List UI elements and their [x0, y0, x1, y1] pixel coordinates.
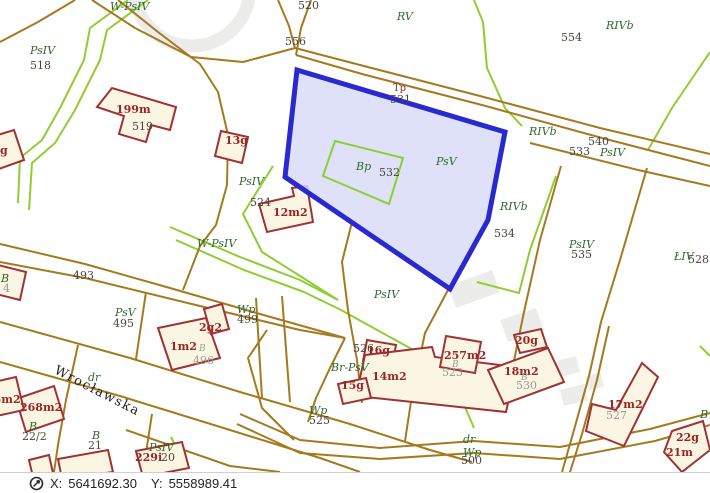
status-bar: X: 5641692.30 Y: 5558989.41: [0, 472, 710, 493]
parcel-number: 528: [688, 254, 709, 265]
building-label: 14m2: [372, 371, 407, 382]
parcel-number: 535: [571, 249, 592, 260]
map-canvas[interactable]: W-PsIVPsIV518RV520556RIVb554Tp531199m519…: [0, 0, 710, 472]
parcel-number: 524: [250, 197, 271, 208]
position-compass-icon: [29, 476, 44, 491]
parcel-number: 519: [132, 121, 153, 132]
faded-label: B: [199, 345, 206, 354]
landuse-label: Bp: [356, 161, 371, 172]
landuse-label: RIVb: [529, 126, 557, 137]
building-label: 12m2: [273, 207, 308, 218]
coordinate-x-label: X:: [50, 476, 62, 491]
building-label: 199m: [116, 104, 151, 115]
parcel-number: 534: [494, 228, 515, 239]
landuse-label: PsIV: [239, 176, 264, 187]
landuse-label: PsV: [436, 156, 457, 167]
parcel-number: 21: [88, 440, 102, 451]
faded-number: 496: [193, 355, 214, 366]
parcel-number: 20: [161, 452, 175, 463]
parcel-number: 556: [285, 36, 306, 47]
faded-number: 530: [516, 380, 537, 391]
building-label: 16g: [367, 345, 390, 356]
faded-number: 4: [3, 283, 10, 294]
parcel-map-viewer: W-PsIVPsIV518RV520556RIVb554Tp531199m519…: [0, 0, 710, 493]
landuse-label: dr: [463, 434, 475, 445]
landuse-label: RIVb: [606, 20, 634, 31]
faded-number: 527: [606, 410, 627, 421]
landuse-label: PsIV: [374, 289, 399, 300]
parcel-number: 520: [298, 0, 319, 11]
parcel-number: 493: [73, 270, 94, 281]
building-label: g: [0, 145, 8, 156]
coordinate-y-label: Y:: [151, 476, 163, 491]
building-label: 257m2: [444, 350, 486, 361]
building-label: 22g: [676, 432, 699, 443]
parcel-number: 532: [379, 167, 400, 178]
landuse-label: PsIV: [30, 45, 55, 56]
landuse-label: RV: [397, 11, 413, 22]
building-label: 268m2: [20, 402, 62, 413]
parcel-number: 518: [30, 60, 51, 71]
building-label: 20g: [515, 335, 538, 346]
building-label: 229i: [135, 452, 162, 463]
building-label: 13g: [225, 135, 248, 146]
landuse-label: PsIV: [600, 147, 625, 158]
parcel-number: 499: [237, 314, 258, 325]
landuse-label: Br-PsV: [331, 362, 369, 373]
building-label: 1m2: [170, 341, 197, 352]
landuse-label: W-PsIV: [197, 238, 236, 249]
coordinate-y-value: 5558989.41: [169, 476, 238, 491]
coordinate-x-value: 5641692.30: [68, 476, 137, 491]
parcel-number: 554: [561, 32, 582, 43]
parcel-number: 495: [113, 318, 134, 329]
landuse-label: W-PsIV: [110, 1, 149, 12]
building-label: 65m2: [0, 394, 21, 405]
parcel-number: 531: [390, 94, 411, 105]
building-label: 15g: [341, 380, 364, 391]
building-label: 2g2: [199, 322, 222, 333]
parcel-number: 533: [569, 146, 590, 157]
building-label: 21m: [666, 447, 693, 458]
faded-number: 523: [442, 367, 463, 378]
parcel-number: 525: [309, 415, 330, 426]
parcel-number: 22/2: [22, 431, 47, 442]
landuse-label: B: [700, 409, 708, 420]
map-labels-layer: W-PsIVPsIV518RV520556RIVb554Tp531199m519…: [0, 0, 710, 472]
parcel-number: 500: [461, 455, 482, 466]
landuse-label: RIVb: [500, 201, 528, 212]
